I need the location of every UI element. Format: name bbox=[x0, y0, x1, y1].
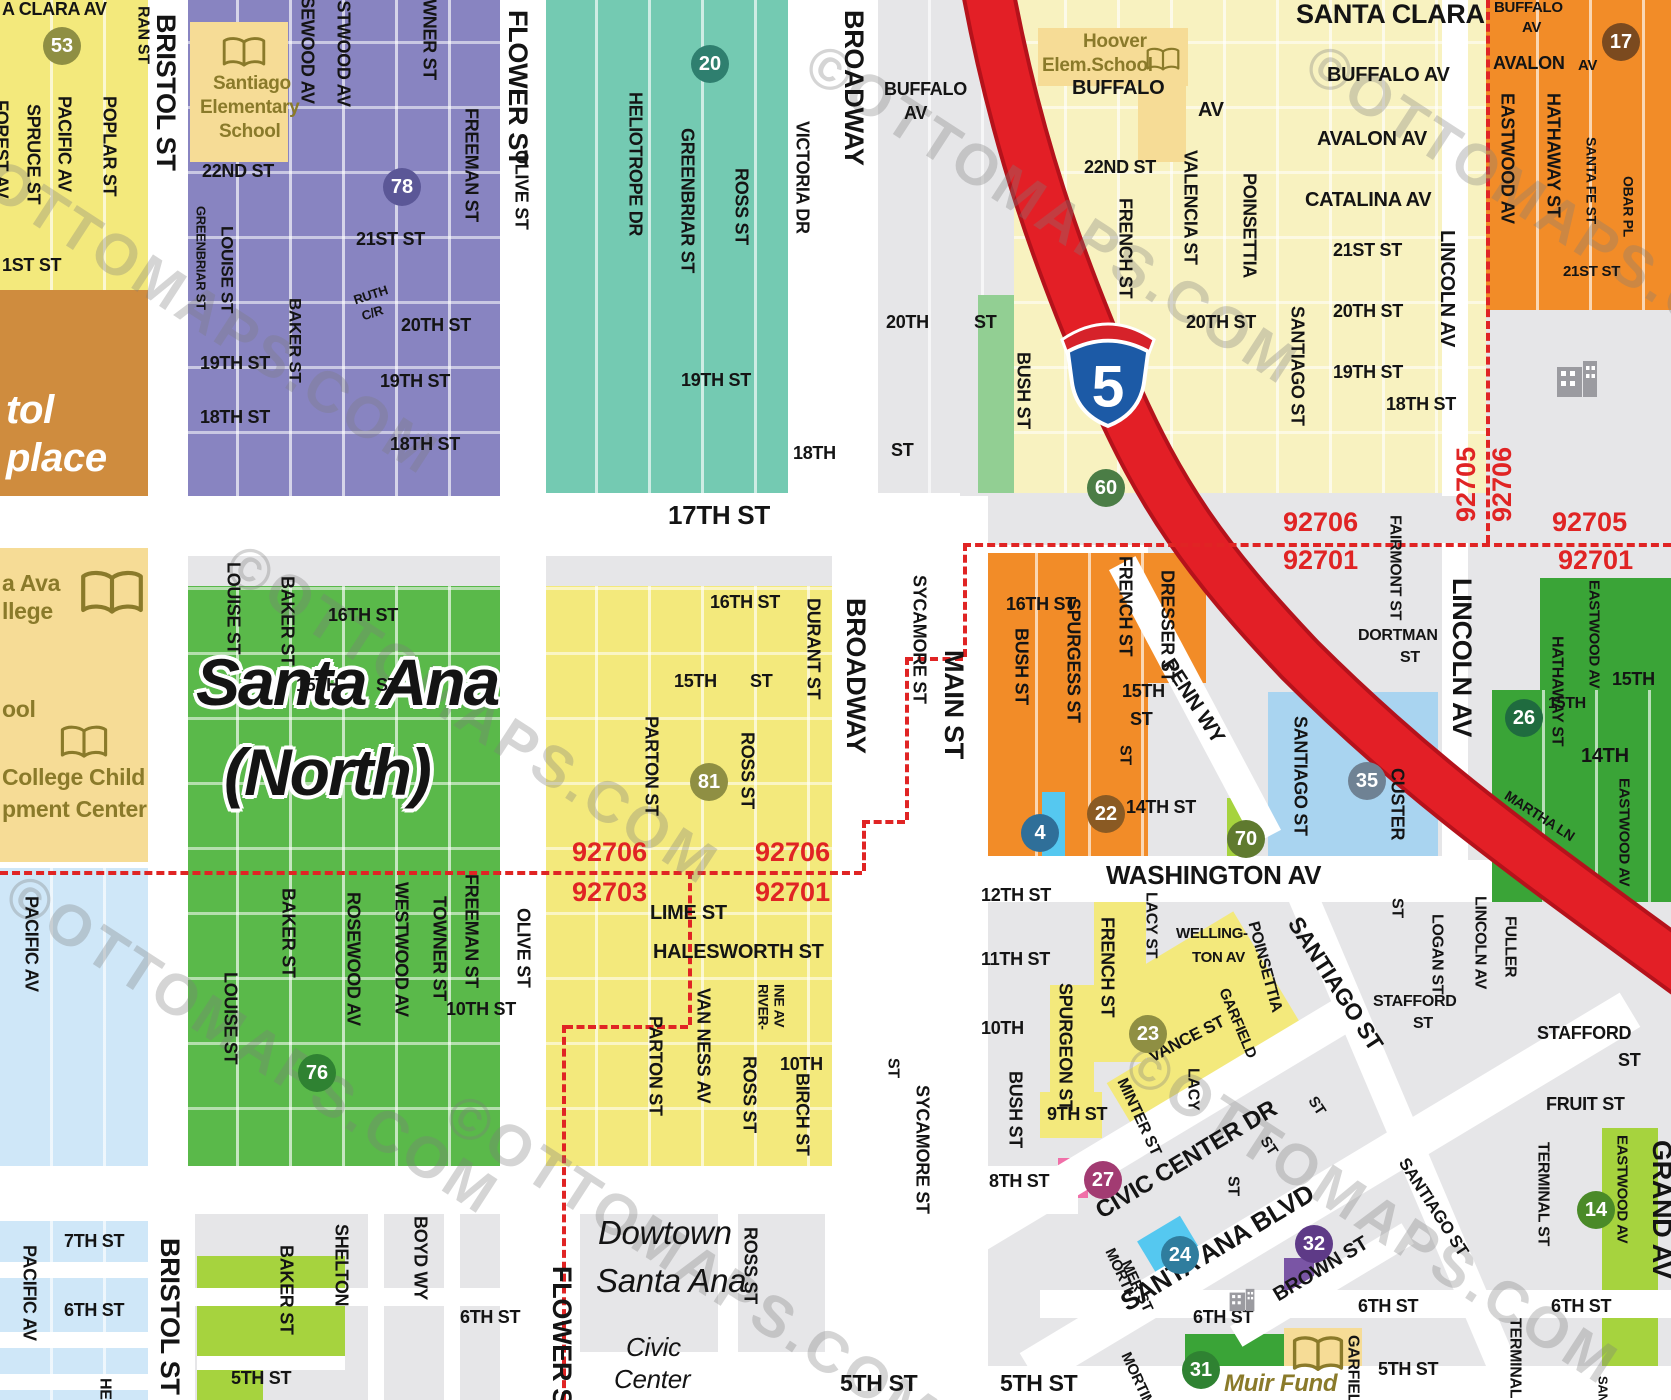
college-icon bbox=[80, 570, 144, 618]
label-11th-st: 11TH ST bbox=[981, 950, 1050, 969]
label-14th: 14TH bbox=[1581, 746, 1629, 767]
label-santiago-st: SANTIAGO ST bbox=[1291, 716, 1310, 836]
label-baker-st: BAKER ST bbox=[286, 298, 304, 383]
label-eastwood-av: EASTWOOD AV bbox=[1586, 580, 1602, 688]
label-eastwood-av: EASTWOOD AV bbox=[1614, 1135, 1630, 1243]
label-pacific-av: PACIFIC AV bbox=[22, 896, 41, 992]
label-parton-st: PARTON ST bbox=[646, 1016, 665, 1116]
label-garfield: GARFIELD bbox=[1344, 1335, 1361, 1400]
label-heliotrope-dr: HELIOTROPE DR bbox=[626, 92, 645, 236]
label-buffalo: BUFFALO bbox=[1072, 78, 1164, 99]
label-dortman: DORTMAN bbox=[1358, 628, 1438, 645]
label-9th-st: 9TH ST bbox=[1047, 1105, 1107, 1124]
label-16th-st: 16TH ST bbox=[328, 606, 398, 625]
label-av: AV bbox=[1198, 100, 1224, 121]
label-dowtown: Dowtown bbox=[598, 1216, 732, 1250]
label-st: ST bbox=[974, 313, 996, 332]
label-10th: 10TH bbox=[981, 1019, 1024, 1038]
label-fruit-st: FRUIT ST bbox=[1546, 1095, 1625, 1114]
zip-line-c bbox=[963, 543, 967, 657]
label-av: AV bbox=[1578, 58, 1597, 74]
zone-lime-baker bbox=[197, 1256, 345, 1356]
label-92706: 92706 bbox=[572, 838, 647, 866]
interstate-5-shield: 5 bbox=[1059, 318, 1157, 430]
label-birch-st: BIRCH ST bbox=[793, 1073, 812, 1156]
label-ross-st: ROSS ST bbox=[740, 1056, 759, 1133]
label-valencia-st: VALENCIA ST bbox=[1181, 150, 1200, 265]
label-st: ST bbox=[376, 676, 398, 695]
label-french-st: FRENCH ST bbox=[1116, 556, 1135, 656]
label-sycamore-st: SYCAMORE ST bbox=[910, 575, 929, 704]
label-hoover: Hoover bbox=[1083, 32, 1147, 52]
label-lacy: LACY bbox=[1184, 1068, 1201, 1110]
label-forest-av: FOREST AV bbox=[0, 100, 11, 198]
label-place: place bbox=[6, 438, 107, 480]
label-washington-av: WASHINGTON AV bbox=[1106, 862, 1321, 889]
label-santiago: Santiago bbox=[213, 74, 291, 94]
road-boyd-wy bbox=[444, 1214, 460, 1400]
label-pment-center: pment Center bbox=[2, 798, 147, 822]
label-92706: 92706 bbox=[1283, 508, 1358, 536]
label-st: ST bbox=[1224, 1176, 1241, 1196]
label-20th-st: 20TH ST bbox=[1333, 302, 1403, 321]
label-spruce-st: SPRUCE ST bbox=[24, 104, 43, 204]
label-a-ava: a Ava bbox=[2, 572, 60, 596]
label-92701: 92701 bbox=[1283, 546, 1358, 574]
badge-35: 35 bbox=[1348, 762, 1386, 800]
zip-line-j bbox=[565, 1025, 688, 1029]
label-st: ST bbox=[1116, 745, 1133, 765]
badge-70: 70 bbox=[1227, 820, 1265, 858]
label-92705: 92705 bbox=[1452, 447, 1480, 522]
label-19th-st: 19TH ST bbox=[681, 371, 751, 390]
label-lincoln-av: LINCOLN AV bbox=[1448, 578, 1476, 737]
label-poinsettia: POINSETTIA bbox=[1240, 173, 1259, 278]
badge-78: 78 bbox=[383, 168, 421, 206]
label-st: ST bbox=[1618, 1051, 1640, 1070]
label-st: ST bbox=[750, 672, 772, 691]
label-6th-st: 6TH ST bbox=[1551, 1297, 1611, 1316]
label-stafford: STAFFORD bbox=[1373, 994, 1457, 1011]
label-st: ST bbox=[1388, 898, 1405, 918]
label-baker-st: BAKER ST bbox=[279, 888, 298, 978]
label-buffalo-av: BUFFALO AV bbox=[1327, 65, 1450, 86]
label-lacy-st: LACY ST bbox=[1142, 892, 1159, 958]
label-grand-av: GRAND AV bbox=[1648, 1140, 1671, 1279]
label-olive-st: OLIVE ST bbox=[514, 908, 533, 988]
badge-32: 32 bbox=[1295, 1225, 1333, 1263]
label-15th: 15TH bbox=[1612, 670, 1655, 689]
label-ran-st: RAN ST bbox=[134, 6, 151, 64]
college-child-icon bbox=[60, 724, 108, 762]
label-92706: 92706 bbox=[1488, 447, 1516, 522]
label-bush-st: BUSH ST bbox=[1006, 1071, 1025, 1148]
label-greenbriar-st: GREENBRIAR ST bbox=[194, 206, 208, 310]
label-pacific-av: PACIFIC AV bbox=[20, 1245, 39, 1341]
badge-4: 4 bbox=[1021, 814, 1059, 852]
label-westwood-av: WESTWOOD AV bbox=[334, 0, 353, 107]
label-16th-st: 16TH ST bbox=[710, 593, 780, 612]
label-17th-st: 17TH ST bbox=[668, 502, 770, 529]
label-lincoln-av: LINCOLN AV bbox=[1436, 230, 1457, 347]
label-ine-av: INE AV bbox=[772, 984, 787, 1027]
label-greenbriar-st: GREENBRIAR ST bbox=[678, 128, 697, 273]
label-10th: 10TH bbox=[780, 1055, 823, 1074]
label-a-clara-av: A CLARA AV bbox=[2, 0, 107, 19]
label-school: School bbox=[219, 122, 281, 142]
label-spurgeon-st: SPURGEON ST bbox=[1056, 983, 1075, 1111]
zip-line-f bbox=[862, 820, 905, 824]
label-7th-st: 7TH ST bbox=[64, 1232, 124, 1251]
label-santa-ana: Santa Ana bbox=[596, 1264, 746, 1298]
label-catalina-av: CATALINA AV bbox=[1305, 190, 1431, 211]
label-logan-st: LOGAN ST bbox=[1428, 914, 1445, 994]
label-22nd-st: 22ND ST bbox=[202, 162, 274, 181]
label-louise-st: LOUISE ST bbox=[221, 972, 240, 1064]
badge-17: 17 bbox=[1602, 23, 1640, 61]
label-tol: tol bbox=[6, 390, 54, 432]
building-icon-se bbox=[1229, 1288, 1255, 1312]
label-pacific-av: PACIFIC AV bbox=[55, 96, 74, 192]
building-icon-ne bbox=[1556, 360, 1598, 398]
label-5th-st: 5TH ST bbox=[231, 1369, 291, 1388]
zip-line-g bbox=[862, 820, 866, 871]
label-towner-st: TOWNER ST bbox=[430, 896, 449, 1001]
label-6th-st: 6TH ST bbox=[460, 1308, 520, 1327]
label-st: ST bbox=[891, 441, 913, 460]
label-center: Center bbox=[614, 1366, 690, 1393]
badge-53: 53 bbox=[43, 27, 81, 65]
label-19th-st: 19TH ST bbox=[380, 372, 450, 391]
road-lightblue-gap-1 bbox=[0, 1205, 148, 1221]
label-obar-pl: OBAR PL bbox=[1621, 176, 1636, 237]
label-broadway: BROADWAY bbox=[842, 598, 870, 754]
label-shelton: SHELTON bbox=[332, 1224, 351, 1306]
label-avalon-av: AVALON AV bbox=[1317, 129, 1427, 150]
label-18th-st: 18TH ST bbox=[1386, 395, 1456, 414]
santiago-school-icon bbox=[222, 36, 266, 70]
label-14th-st: 14TH ST bbox=[1126, 798, 1196, 817]
label-15th: 15TH bbox=[1122, 682, 1165, 701]
badge-81: 81 bbox=[690, 763, 728, 801]
label-river: RIVER- bbox=[756, 984, 771, 1030]
label-elementary: Elementary bbox=[200, 98, 299, 118]
label-22nd-st: 22ND ST bbox=[1084, 158, 1156, 177]
zone-gray-strip-yellow-top bbox=[545, 556, 832, 586]
label-durant-st: DURANT ST bbox=[804, 598, 823, 699]
label-french-st: FRENCH ST bbox=[1116, 198, 1135, 298]
badge-27: 27 bbox=[1084, 1161, 1122, 1199]
badge-26: 26 bbox=[1505, 699, 1543, 737]
label-santa-fe: SANTA FE bbox=[1596, 1376, 1610, 1400]
label-15th: 15TH bbox=[674, 672, 717, 691]
label-ross-st: ROSS ST bbox=[732, 168, 751, 245]
zip-line-h bbox=[0, 871, 862, 875]
label-21st-st: 21ST ST bbox=[1563, 264, 1620, 280]
label-louise-st: LOUISE ST bbox=[224, 562, 243, 654]
label-terminal-st: TERMINAL ST bbox=[1534, 1142, 1551, 1246]
label-bush-st: BUSH ST bbox=[1014, 352, 1033, 429]
label-santiago-st: SANTIAGO ST bbox=[1288, 306, 1307, 426]
label-st: ST bbox=[1400, 650, 1420, 667]
label-santa-ana: Santa Ana bbox=[196, 648, 498, 717]
label-french-st: FRENCH ST bbox=[1098, 917, 1117, 1017]
label-hathaway-st: HATHAWAY ST bbox=[1548, 636, 1565, 746]
road-17th-st bbox=[0, 496, 988, 548]
label-8th-st: 8TH ST bbox=[989, 1172, 1049, 1191]
label-5th-st: 5TH ST bbox=[1378, 1360, 1438, 1379]
label-1st-st: 1ST ST bbox=[2, 256, 61, 275]
label-lincoln-av: LINCOLN AV bbox=[1471, 896, 1488, 989]
label-avalon: AVALON bbox=[1493, 54, 1565, 73]
badge-24: 24 bbox=[1161, 1236, 1199, 1274]
label-halesworth-st: HALESWORTH ST bbox=[653, 942, 824, 963]
label-av: AV bbox=[1522, 20, 1541, 36]
label-santa-clara: SANTA CLARA bbox=[1296, 0, 1485, 28]
label-poplar-st: POPLAR ST bbox=[100, 96, 119, 196]
label-20th-st: 20TH ST bbox=[1186, 313, 1256, 332]
label-van-ness-av: VAN NESS AV bbox=[694, 988, 713, 1103]
label-spurgess-st: SPURGESS ST bbox=[1064, 598, 1083, 723]
label-terminal: TERMINAL bbox=[1506, 1318, 1523, 1398]
label-19th-st: 19TH ST bbox=[200, 354, 270, 373]
label-20th: 20TH bbox=[886, 313, 929, 332]
label-custer: CUSTER bbox=[1388, 768, 1407, 840]
hoover-school-icon bbox=[1146, 46, 1180, 74]
label-flower-st: FLOWER ST bbox=[548, 1266, 576, 1400]
label-broadway: BROADWAY bbox=[840, 10, 868, 166]
label-18th-st: 18TH ST bbox=[200, 408, 270, 427]
label-victoria-dr: VICTORIA DR bbox=[793, 121, 812, 234]
label-louise-st: LOUISE ST bbox=[218, 226, 236, 313]
label-bristol-st: BRISTOL ST bbox=[156, 1238, 184, 1395]
badge-20: 20 bbox=[691, 45, 729, 83]
label-welling: WELLING- bbox=[1176, 926, 1248, 942]
label-main-st: MAIN ST bbox=[940, 650, 968, 759]
label-6th-st: 6TH ST bbox=[64, 1301, 124, 1320]
label-10th-st: 10TH ST bbox=[446, 1000, 516, 1019]
label-92706: 92706 bbox=[755, 838, 830, 866]
label-19th-st: 19TH ST bbox=[1333, 363, 1403, 382]
badge-23: 23 bbox=[1129, 1015, 1167, 1053]
badge-76: 76 bbox=[298, 1054, 336, 1092]
badge-60: 60 bbox=[1087, 469, 1125, 507]
label-st: ST bbox=[1130, 710, 1152, 729]
label-15th: 15TH bbox=[296, 676, 339, 695]
label-ross-st: ROSS ST bbox=[738, 732, 757, 809]
label-92703: 92703 bbox=[572, 878, 647, 906]
map-canvas[interactable]: ©OTTOMAPS.COM©OTTOMAPS.COM©OTTOMAPS.COM©… bbox=[0, 0, 1671, 1400]
zip-line-e bbox=[905, 657, 909, 820]
label-baker-st: BAKER ST bbox=[278, 576, 297, 666]
muir-school-icon bbox=[1292, 1332, 1344, 1378]
label-ool: ool bbox=[2, 698, 36, 722]
label-stafford: STAFFORD bbox=[1537, 1024, 1631, 1043]
road-main-st-lower bbox=[956, 902, 982, 1366]
label-towner-st: TOWNER ST bbox=[420, 0, 439, 80]
label-bristol-st: BRISTOL ST bbox=[152, 14, 180, 171]
label-westwood-av: WESTWOOD AV bbox=[392, 882, 411, 1017]
label-boyd-wy: BOYD WY bbox=[411, 1216, 430, 1300]
label-5th-st: 5TH ST bbox=[840, 1372, 917, 1396]
label-ton-av: TON AV bbox=[1192, 950, 1245, 966]
label-college-child: College Child bbox=[2, 766, 145, 790]
badge-22: 22 bbox=[1087, 795, 1125, 833]
label-lime-st: LIME ST bbox=[650, 903, 727, 924]
label-llege: llege bbox=[2, 600, 53, 624]
label-12th-st: 12TH ST bbox=[981, 886, 1051, 905]
label-elem-school: Elem.School bbox=[1042, 56, 1153, 76]
label-buffalo: BUFFALO bbox=[884, 80, 967, 99]
label-freeman-st: FREEMAN ST bbox=[462, 108, 481, 222]
label-st: ST bbox=[884, 1058, 901, 1078]
label-baker-st: BAKER ST bbox=[277, 1245, 296, 1335]
label-18th-st: 18TH ST bbox=[390, 435, 460, 454]
label-rosewood-av: ROSEWOOD AV bbox=[344, 892, 363, 1026]
label-21st-st: 21ST ST bbox=[1333, 241, 1402, 260]
label-hathaway-st: HATHAWAY ST bbox=[1544, 93, 1563, 217]
label-92701: 92701 bbox=[1558, 546, 1633, 574]
badge-31: 31 bbox=[1182, 1351, 1220, 1389]
label-north: (North) bbox=[224, 738, 430, 807]
svg-text:5: 5 bbox=[1092, 354, 1125, 419]
label-18th: 18TH bbox=[793, 444, 836, 463]
label-eastwood-av: EASTWOOD AV bbox=[1498, 93, 1517, 224]
label-flower-st: FLOWER ST bbox=[504, 10, 532, 166]
label-92701: 92701 bbox=[755, 878, 830, 906]
label-eastwood-av: EASTWOOD AV bbox=[1616, 778, 1632, 886]
label-5th-st: 5TH ST bbox=[1000, 1372, 1077, 1396]
label-av: AV bbox=[904, 104, 927, 123]
label-bush-st: BUSH ST bbox=[1012, 628, 1031, 705]
label-santa-fe-st: SANTA FE ST bbox=[1584, 137, 1599, 224]
road-lightblue-gap-4 bbox=[0, 1374, 148, 1390]
label-fuller: FULLER bbox=[1501, 916, 1518, 977]
label-he: HE bbox=[96, 1378, 113, 1400]
label-buffalo: BUFFALO bbox=[1494, 0, 1563, 16]
label-st: ST bbox=[1413, 1016, 1433, 1033]
label-civic: Civic bbox=[626, 1334, 681, 1361]
label-sycamore-st: SYCAMORE ST bbox=[913, 1085, 932, 1214]
label-parton-st: PARTON ST bbox=[642, 716, 661, 816]
badge-14: 14 bbox=[1577, 1191, 1615, 1229]
label-freeman-st: FREEMAN ST bbox=[462, 874, 481, 988]
label-rosewood-av: ROSEWOOD AV bbox=[298, 0, 317, 104]
label-fairmont-st: FAIRMONT ST bbox=[1386, 515, 1403, 620]
zone-teal bbox=[545, 0, 788, 493]
road-shelton-road bbox=[368, 1214, 384, 1400]
label-20th-st: 20TH ST bbox=[401, 316, 471, 335]
label-92705: 92705 bbox=[1552, 508, 1627, 536]
label-6th-st: 6TH ST bbox=[1358, 1297, 1418, 1316]
label-21st-st: 21ST ST bbox=[356, 230, 425, 249]
